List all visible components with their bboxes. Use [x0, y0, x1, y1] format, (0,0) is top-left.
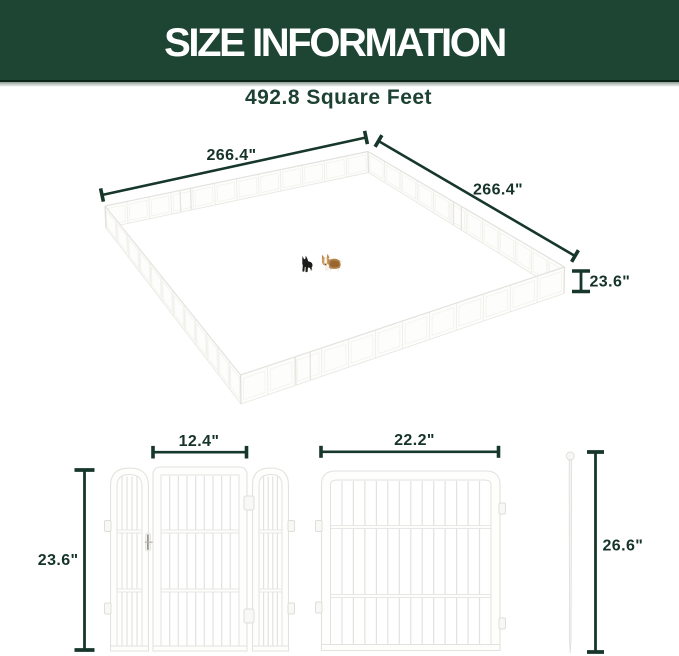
svg-text:23.6": 23.6" [38, 552, 79, 569]
svg-text:12.4": 12.4" [179, 433, 220, 450]
svg-text:26.6": 26.6" [603, 538, 644, 555]
svg-text:266.4": 266.4" [206, 147, 256, 164]
svg-text:266.4": 266.4" [473, 182, 523, 199]
svg-text:22.2": 22.2" [394, 432, 435, 449]
svg-text:23.6": 23.6" [590, 274, 631, 291]
